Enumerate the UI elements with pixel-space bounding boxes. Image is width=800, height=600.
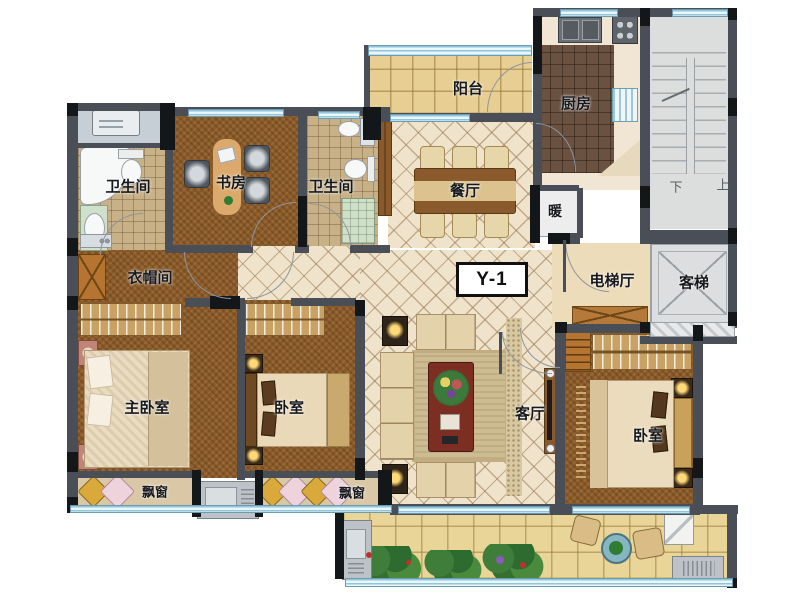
label-bedroom-mid: 卧室 [274,397,304,418]
wall-bedroom-mid-top [291,298,356,306]
wallb-laundry-study [160,103,175,150]
flower-red-2 [406,560,411,565]
wall-mid-living [355,300,365,480]
window-bath-mid [318,111,360,119]
wallb-left-2 [67,238,78,256]
bedroom-right-rug-fringe [576,386,586,482]
bedroom-mid-lamp-bottom [246,448,261,463]
label-stairs-up: 上 [716,175,729,194]
living-lamp-top [386,321,404,339]
window-dining-balcony [390,114,470,122]
flower-red-1 [366,552,372,558]
window-bay-band [70,505,392,513]
wall-entry-right [640,233,737,244]
flower-bed-3 [478,544,546,578]
wall-top-left [67,103,170,111]
dining-chair-5 [452,212,477,238]
kitchen-stove [612,16,638,44]
cloakroom-wardrobe [78,254,106,300]
wall-elevhall-bottom [555,324,650,333]
wallb-kitchen-left [533,16,542,74]
label-study: 书房 [216,172,246,193]
stair-rail [686,58,695,174]
bedroom-right-lamp-top [674,380,690,396]
wallb-balcony-left [363,107,381,140]
wallb-elevhall-2 [640,322,650,333]
wallb-kitchen-bottom [640,186,650,208]
flower-red-3 [520,562,526,568]
window-stairs [672,9,728,17]
label-guest-elevator: 客梯 [679,272,709,293]
wallb-left-1 [67,103,78,116]
shoe-cabinet [572,306,648,325]
unit-label-text: Y-1 [476,269,508,291]
bedroom-mid-lamp-top [246,356,261,371]
wallb-right-3 [728,228,737,244]
ac-unit-balcony-left-louvers [348,563,364,575]
window-kitchen [560,9,618,17]
wallb-midliving-top [355,300,365,316]
master-closet-rack [80,303,182,336]
wallb-balcony-left-post [335,505,344,579]
bedroom-mid-closet-rack [245,303,325,336]
bedroom-mid-bed-headboard [245,373,257,447]
kitchen-sink-basin-right [582,20,599,40]
washing-machine [92,110,140,136]
master-pillow-2 [86,393,113,427]
ac-unit-balcony-left [342,520,372,580]
bedroom-mid-blanket [327,373,350,447]
coffee-table-flowers [433,370,469,406]
living-armchair-top [416,314,476,350]
label-balcony-top: 阳台 [453,78,483,99]
flower-purple [496,556,504,564]
label-bath-left: 卫生间 [105,176,150,197]
unit-label-box: Y-1 [456,262,528,297]
living-sofa-main [380,352,414,460]
wall-bedroom-right-right [693,325,703,510]
label-heater: 暖 [548,201,562,221]
window-living-balcony-1 [398,506,550,514]
window-balcony-bottom [345,578,733,587]
label-living: 客厅 [515,403,545,424]
wallb-kitchen-top [640,8,650,26]
wallb-heater-left [530,185,540,243]
window-balcony-top [368,45,532,56]
wall-master-mid [237,298,245,480]
balcony-table-plant [609,541,623,555]
tv-screen [547,380,552,440]
label-bedroom-right: 卧室 [633,425,663,446]
label-bay-window-left: 飘窗 [142,482,168,501]
floorplan-canvas: 阳台 厨房 下 上 卫生间 书房 卫生间 餐厅 暖 电梯厅 客梯 衣帽间 主卧室… [0,0,800,600]
label-stairs-down: 下 [669,177,682,196]
tv-speaker-bottom [546,444,555,453]
ac-unit-mid [197,481,259,519]
study-plant [224,196,233,205]
label-bath-mid: 卫生间 [308,176,353,197]
wall-bath-mid-bottom [350,245,390,253]
wallb-br-bottom [693,458,703,478]
door-leaf-bedroom-right [499,332,502,374]
label-cloakroom: 衣帽间 [127,267,172,288]
wallb-br-top [693,325,703,341]
wallb-midliving-bottom [355,458,365,480]
window-study [188,109,284,117]
coffee-table-remote [442,436,458,444]
wallb-left-4 [67,452,78,472]
bedroom-right-bed-headboard [674,398,692,468]
wall-right-outer [728,8,737,328]
window-living-balcony-2 [572,506,690,514]
kitchen-window-appliance [612,88,638,122]
wall-laundry-divider [70,143,165,148]
label-master-bedroom: 主卧室 [124,397,169,418]
flower-bed-2 [420,550,484,580]
dining-chair-6 [484,212,509,238]
label-kitchen: 厨房 [561,93,591,114]
wall-master-bay [78,471,197,478]
label-dining: 餐厅 [450,180,480,201]
balcony-chair-right [632,527,666,561]
study-chair-left [184,160,210,188]
balcony-water-heater [664,513,694,545]
study-chair-bottom-right [244,177,270,204]
ac-unit-balcony-right-louvers [683,561,715,576]
label-elevator-hall: 电梯厅 [589,270,634,291]
bedroom-right-shelf [565,332,591,372]
wallb-right-1 [728,8,737,20]
coffee-table-tray [440,414,460,430]
sink-mid [338,121,360,137]
dining-chair-4 [420,212,445,238]
master-pillow-1 [86,355,114,390]
wall-balcony-right [727,505,737,588]
bedroom-right-lamp-bottom [674,470,690,486]
door-leaf-entry [563,240,566,292]
bedroom-right-blanket [590,380,608,488]
living-armchair-bottom [416,462,476,498]
wallb-right-2 [728,98,737,116]
kitchen-sink-basin-left [562,20,579,40]
label-bay-window-mid: 飘窗 [339,483,365,502]
ac-unit-balcony-right [672,556,724,580]
wallb-bath-mid-left [298,196,307,247]
wall-heater-right [577,188,583,238]
wallb-left-3 [67,296,78,310]
ac-unit-balcony-left-panel [346,529,366,559]
study-chair-top-right [244,145,270,172]
toilet-left-tank [118,149,144,159]
toilet-mid-tank [367,156,375,182]
bedroom-right-pillow-1 [651,391,669,418]
wallb-right-4 [728,312,737,326]
wall-shaft-bottom [640,336,737,344]
